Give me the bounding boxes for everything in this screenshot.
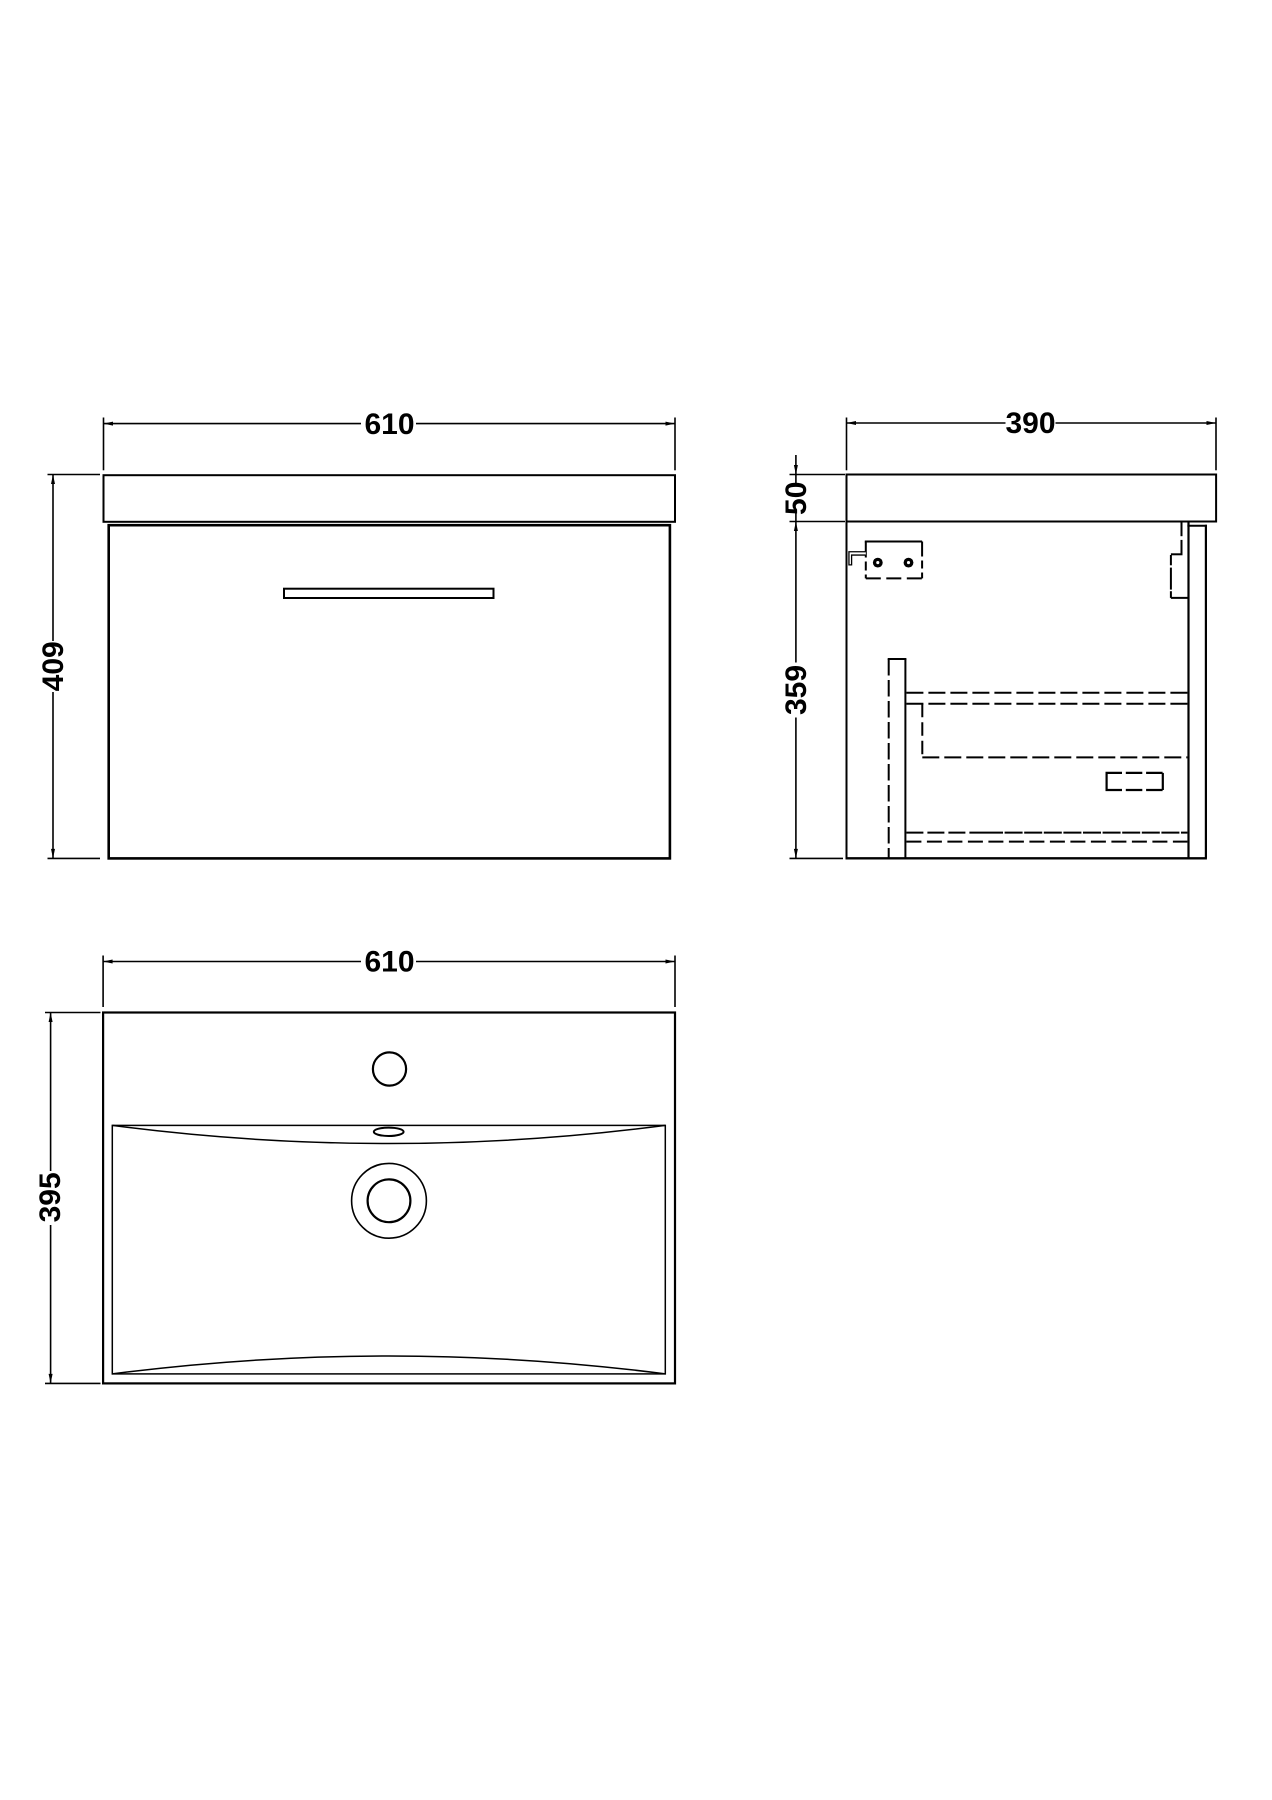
svg-text:390: 390 xyxy=(1005,407,1055,440)
svg-text:395: 395 xyxy=(34,1172,67,1222)
svg-text:610: 610 xyxy=(364,946,414,979)
svg-text:610: 610 xyxy=(364,408,414,441)
svg-text:409: 409 xyxy=(37,641,70,691)
svg-text:359: 359 xyxy=(780,665,813,715)
svg-text:50: 50 xyxy=(780,482,813,515)
